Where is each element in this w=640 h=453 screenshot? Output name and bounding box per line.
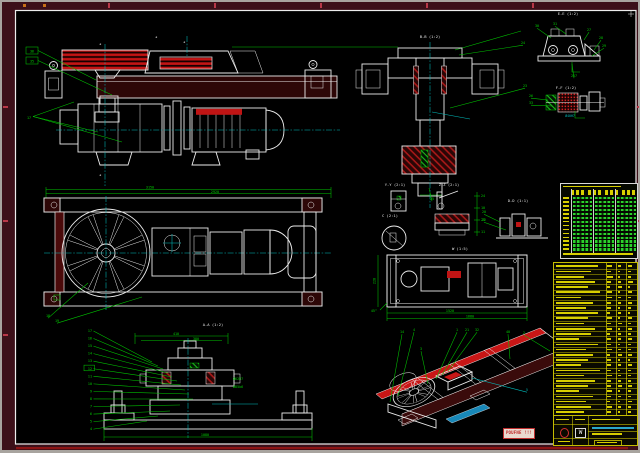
bom-row-line	[554, 388, 637, 389]
bom-row-line	[554, 336, 637, 337]
bom-row-line	[554, 310, 637, 311]
param-row-index	[563, 237, 569, 239]
param-cell	[617, 213, 636, 215]
bom-cell	[628, 281, 633, 283]
bom-cell	[628, 375, 632, 377]
param-row-index	[563, 229, 569, 231]
assembly-callout-number: 5	[90, 420, 92, 424]
param-cell	[573, 209, 592, 211]
bom-cell-description	[556, 411, 584, 413]
dim-assembly-top: 410	[173, 332, 179, 336]
titleblock-text	[592, 419, 620, 421]
bom-cell	[628, 364, 633, 366]
assembly-callout-number: 6	[90, 412, 92, 416]
bom-cell	[618, 359, 621, 361]
bom-cell	[628, 411, 632, 413]
bom-row-line	[554, 269, 637, 270]
param-cell	[595, 217, 614, 219]
assembly-callout-number: 12	[88, 367, 92, 371]
titleblock-text	[575, 419, 585, 421]
param-cell	[595, 205, 614, 207]
bom-cell	[628, 328, 632, 330]
bom-row-line	[554, 290, 637, 291]
param-cell	[617, 209, 636, 211]
param-cell	[617, 229, 636, 231]
bom-cell	[618, 302, 621, 304]
bom-row-line	[554, 295, 637, 296]
bom-row-line	[554, 321, 637, 322]
bom-cell	[628, 317, 633, 319]
bom-cell-description	[556, 333, 591, 335]
bom-cell	[628, 390, 632, 392]
view-title-frame: W (1:5)	[452, 246, 468, 251]
bom-cell	[628, 323, 631, 325]
bom-cell	[607, 385, 611, 387]
bom-cell	[628, 307, 632, 309]
dim-fit2: Ø85k6	[233, 384, 243, 389]
bom-cell-description	[556, 401, 587, 403]
bom-row-line	[554, 362, 637, 363]
bom-cell-description	[556, 317, 589, 319]
belt-guard-hatched	[160, 57, 212, 69]
bom-cell-description	[556, 385, 589, 387]
bom-cell	[618, 286, 622, 288]
param-cell	[573, 197, 592, 199]
bom-row-line	[554, 378, 637, 379]
bom-cell	[628, 359, 631, 361]
callout-label: 35	[30, 59, 34, 63]
title-block: W	[553, 415, 638, 446]
assembly-callout-number: 10	[88, 382, 92, 386]
titleblock-hline	[554, 424, 637, 425]
assembly-callout-number: 9	[90, 389, 92, 393]
callout-label: 24	[521, 41, 525, 45]
callout-label: 5	[526, 388, 528, 392]
callout-label: 26	[529, 94, 533, 98]
bom-cell	[607, 271, 611, 273]
bom-cell	[607, 370, 611, 372]
bom-cell	[618, 344, 620, 346]
param-cell	[617, 221, 636, 223]
sheet-scale-box	[594, 440, 622, 447]
bom-cell	[618, 406, 622, 408]
bom-cell	[618, 297, 622, 299]
param-table-header	[605, 190, 619, 195]
param-row-index	[563, 205, 569, 207]
bom-row-line	[554, 409, 637, 410]
param-cell	[595, 244, 614, 246]
bom-cell	[628, 333, 631, 335]
bom-cell	[607, 344, 611, 346]
param-cell	[573, 221, 592, 223]
param-cell	[595, 221, 614, 223]
param-table-footer	[563, 253, 633, 255]
callout-label: 40	[506, 330, 510, 334]
bom-row-line	[554, 342, 637, 343]
param-cell	[595, 225, 614, 227]
bom-cell-description	[556, 276, 584, 278]
dim-assembly-top2: 380	[193, 337, 199, 341]
document-number-line	[592, 427, 634, 429]
bom-row-line	[554, 326, 637, 327]
bom-cell	[618, 364, 622, 366]
bom-row-line	[554, 394, 637, 395]
param-row-index	[563, 213, 569, 215]
bom-cell	[618, 312, 622, 314]
bom-cell-description	[556, 271, 591, 273]
bom-cell	[618, 265, 622, 267]
bom-row-line	[554, 352, 637, 353]
bom-cell-description	[556, 338, 580, 340]
bom-cell	[628, 265, 633, 267]
param-cell	[573, 229, 592, 231]
titleblock-text	[597, 442, 617, 444]
param-row-index	[563, 244, 569, 246]
param-cell	[573, 233, 592, 235]
callout-label: 21	[465, 328, 469, 332]
callout-label: 36	[30, 49, 34, 53]
bom-cell	[628, 401, 632, 403]
bom-cell	[628, 291, 632, 293]
bom-cell	[618, 338, 621, 340]
param-row-index	[563, 201, 569, 203]
param-cell	[573, 237, 592, 239]
bom-cell-description	[556, 370, 601, 372]
param-cell	[595, 240, 614, 242]
callout-label: 4	[413, 328, 415, 332]
assembly-callout-number: 8	[90, 397, 92, 401]
margin-red-line	[16, 447, 628, 449]
param-row-index	[563, 221, 569, 223]
callout-label: 22	[482, 218, 486, 222]
callout-label: 14	[400, 330, 404, 334]
bom-parts-list	[553, 262, 638, 417]
bom-cell	[607, 364, 611, 366]
param-table-separator	[571, 189, 572, 254]
bom-cell	[618, 380, 621, 382]
bom-cell	[618, 385, 622, 387]
bom-cell	[618, 317, 621, 319]
bom-row-line	[554, 331, 637, 332]
bom-row-line	[554, 383, 637, 384]
bom-row-line	[554, 373, 637, 374]
param-cell	[595, 197, 614, 199]
callout-label: 1	[456, 328, 458, 332]
param-row-index	[563, 225, 569, 227]
bom-cell	[618, 291, 620, 293]
titleblock-text	[558, 441, 570, 443]
param-cell	[617, 201, 636, 203]
assembly-callout-number: 14	[88, 352, 92, 356]
company-logo-icon	[560, 428, 569, 438]
bom-cell	[618, 333, 622, 335]
param-cell	[573, 244, 592, 246]
bom-cell	[607, 375, 612, 377]
param-table-separator	[615, 189, 616, 254]
bom-row-line	[554, 279, 637, 280]
param-cell	[617, 237, 636, 239]
callout-label: 20	[482, 210, 486, 214]
bom-cell	[628, 349, 631, 351]
bom-cell	[618, 271, 620, 273]
view-title-y: Y-Y (2:1)	[385, 182, 406, 187]
param-table-separator	[593, 189, 594, 254]
bom-cell	[618, 349, 622, 351]
bom-cell	[628, 302, 633, 304]
callout-label: 23	[523, 84, 527, 88]
drawing-canvas: ◄◄ ◄◄ 363517 B-B (1:2) 242325 E-E (1:2)	[0, 0, 640, 453]
bom-cell-description	[556, 291, 601, 293]
bom-cell-description	[556, 380, 596, 382]
view-title-f: F-F (1:2)	[556, 85, 577, 90]
param-row-index	[563, 209, 569, 211]
param-cell	[595, 229, 614, 231]
dim-tick-label: 24	[481, 194, 485, 198]
dim-fit1: Ø62H7	[233, 376, 243, 381]
bom-cell	[628, 370, 631, 372]
bom-cell	[618, 354, 622, 356]
bom-cell-description	[556, 390, 580, 392]
titleblock-text	[556, 419, 569, 421]
bom-cell	[628, 344, 632, 346]
dim-frame-outer: 1680	[466, 315, 474, 319]
bom-cell	[607, 338, 611, 340]
callout-label: 18	[46, 314, 50, 318]
bom-cell	[618, 401, 621, 403]
callout-label: 27	[587, 28, 591, 32]
view-title-d: D-D (1:1)	[508, 198, 529, 203]
callout-label: 2	[523, 331, 525, 335]
param-cell	[595, 213, 614, 215]
param-cell	[595, 248, 614, 250]
param-cell	[595, 209, 614, 211]
bom-row-line	[554, 284, 637, 285]
bom-row-line	[554, 399, 637, 400]
param-cell	[617, 197, 636, 199]
drawing-frame	[16, 11, 637, 445]
param-cell	[573, 213, 592, 215]
callout-label: 33	[529, 101, 533, 105]
param-cell	[617, 240, 636, 242]
bom-cell	[628, 286, 630, 288]
bom-cell-description	[556, 359, 589, 361]
param-table-header	[622, 190, 636, 195]
bom-cell	[618, 323, 622, 325]
bom-cell-description	[556, 302, 594, 304]
bom-cell-description	[556, 354, 594, 356]
param-row-index	[563, 217, 569, 219]
assembly-callout-number: 7	[90, 405, 92, 409]
confidential-stamp: POUFNE !!!	[503, 428, 535, 439]
bom-cell-description	[556, 265, 598, 267]
bom-cell	[628, 406, 631, 408]
assembly-callout-number: 15	[88, 344, 92, 348]
param-cell	[617, 233, 636, 235]
param-cell	[573, 240, 592, 242]
bom-cell	[607, 349, 612, 351]
bom-cell	[607, 390, 612, 392]
cad-drawing-sheet: ◄◄ ◄◄ 363517 B-B (1:2) 242325 E-E (1:2)	[0, 0, 640, 453]
w-logo-icon: W	[575, 428, 586, 438]
bom-cell-description	[556, 297, 582, 299]
view-title-section-b: B-B (1:2)	[420, 34, 441, 39]
dim-plan-outer: 3150	[146, 186, 154, 190]
param-cell	[573, 201, 592, 203]
bom-cell	[618, 281, 622, 283]
bom-row-line	[554, 368, 637, 369]
bom-cell	[607, 317, 612, 319]
bom-cell	[618, 396, 622, 398]
bom-cell-description	[556, 312, 598, 314]
bom-cell	[607, 286, 610, 288]
bom-cell	[628, 338, 633, 340]
dim-frame-height: 228	[373, 278, 377, 284]
bom-cell	[607, 276, 613, 278]
titleblock-hline	[588, 431, 637, 432]
param-table-header	[571, 190, 585, 195]
dim-frame-corner: 45°	[371, 309, 377, 313]
bom-cell-description	[556, 323, 584, 325]
param-cell	[595, 233, 614, 235]
param-row-index	[563, 233, 569, 235]
callout-label: 31	[553, 22, 557, 26]
bom-cell	[618, 276, 621, 278]
view-title-z: Z-Z (2:1)	[439, 182, 460, 187]
titleblock-vline	[572, 416, 573, 445]
bom-cell-description	[556, 281, 596, 283]
bom-cell-description	[556, 349, 587, 351]
bom-cell	[607, 411, 611, 413]
param-table-header	[588, 190, 602, 195]
view-title-assembly: A-A (1:2)	[203, 322, 224, 327]
assembly-callout-number: 11	[88, 374, 92, 378]
bom-cell	[607, 380, 611, 382]
bom-cell	[628, 271, 632, 273]
parameters-table	[560, 183, 638, 259]
bom-cell	[607, 265, 612, 267]
dim-frame-inner: 1520	[446, 309, 454, 313]
bom-cell	[628, 354, 632, 356]
bom-cell	[607, 323, 611, 325]
bom-cell-description	[556, 307, 587, 309]
bom-cell	[628, 297, 631, 299]
bom-cell	[618, 390, 620, 392]
callout-label: 32	[475, 328, 479, 332]
bom-cell	[618, 375, 622, 377]
bom-cell	[607, 333, 610, 335]
bom-row-line	[554, 300, 637, 301]
bom-cell	[628, 312, 631, 314]
assembly-callout-number: 4	[90, 427, 92, 431]
assembly-callout-number: 16	[88, 337, 92, 341]
callout-label: 19	[55, 319, 59, 323]
bom-cell	[607, 396, 611, 398]
param-row-index	[563, 197, 569, 199]
callout-label: 17	[27, 116, 31, 120]
param-cell	[617, 244, 636, 246]
callout-label: 3	[420, 347, 422, 351]
bom-row-line	[554, 274, 637, 275]
bom-cell	[607, 312, 610, 314]
param-cell	[617, 217, 636, 219]
bom-cell	[607, 281, 611, 283]
param-cell	[595, 237, 614, 239]
bom-cell	[607, 328, 612, 330]
param-cell	[573, 225, 592, 227]
bom-cell	[628, 380, 631, 382]
dim-assembly-bottom: 1080	[201, 433, 209, 437]
bom-row-line	[554, 404, 637, 405]
bom-cell-description	[556, 364, 582, 366]
bom-cell	[607, 359, 611, 361]
counterweight-hatched	[402, 146, 456, 174]
bom-cell-description	[556, 328, 596, 330]
bom-cell	[607, 297, 612, 299]
bom-row-line	[554, 305, 637, 306]
bom-cell	[618, 411, 620, 413]
bom-cell	[618, 328, 620, 330]
assembly-callout-number: 17	[88, 329, 92, 333]
dim-plan-inner: 2920	[211, 190, 219, 194]
view-title-c: C (2:1)	[382, 213, 398, 218]
param-cell	[595, 201, 614, 203]
bom-cell	[628, 276, 631, 278]
titleblock-hline	[554, 438, 637, 439]
bom-cell-description	[556, 375, 584, 377]
bom-cell-description	[556, 344, 598, 346]
bom-row-line	[554, 316, 637, 317]
bom-cell	[607, 401, 610, 403]
bom-cell	[607, 291, 612, 293]
bom-cell	[628, 385, 633, 387]
param-cell	[573, 217, 592, 219]
titleblock-text	[592, 433, 622, 435]
bom-cell	[618, 370, 620, 372]
bom-cell	[628, 396, 631, 398]
param-cell	[617, 205, 636, 207]
bom-row-line	[554, 347, 637, 348]
param-table-title	[563, 186, 621, 188]
bom-cell	[607, 302, 611, 304]
callout-label: 30	[535, 24, 539, 28]
assembly-callout-number: 13	[88, 359, 92, 363]
param-cell	[573, 248, 592, 250]
view-title-e: E-E (1:2)	[558, 11, 579, 16]
bom-cell-description	[556, 396, 594, 398]
param-cell	[617, 225, 636, 227]
param-row-index	[563, 240, 569, 242]
callout-label: 29	[602, 44, 606, 48]
bom-cell	[607, 307, 611, 309]
bom-cell-description	[556, 286, 589, 288]
callout-label: 28	[599, 36, 603, 40]
bom-cell	[607, 406, 612, 408]
param-cell	[573, 205, 592, 207]
bom-cell-description	[556, 406, 591, 408]
bom-row-line	[554, 357, 637, 358]
param-row-index	[563, 248, 569, 250]
param-cell	[617, 248, 636, 250]
bom-cell	[607, 354, 610, 356]
dim-tick-label: 11	[481, 230, 485, 234]
bom-cell	[618, 307, 620, 309]
dim-sectionf: Ø40H7	[565, 113, 575, 118]
